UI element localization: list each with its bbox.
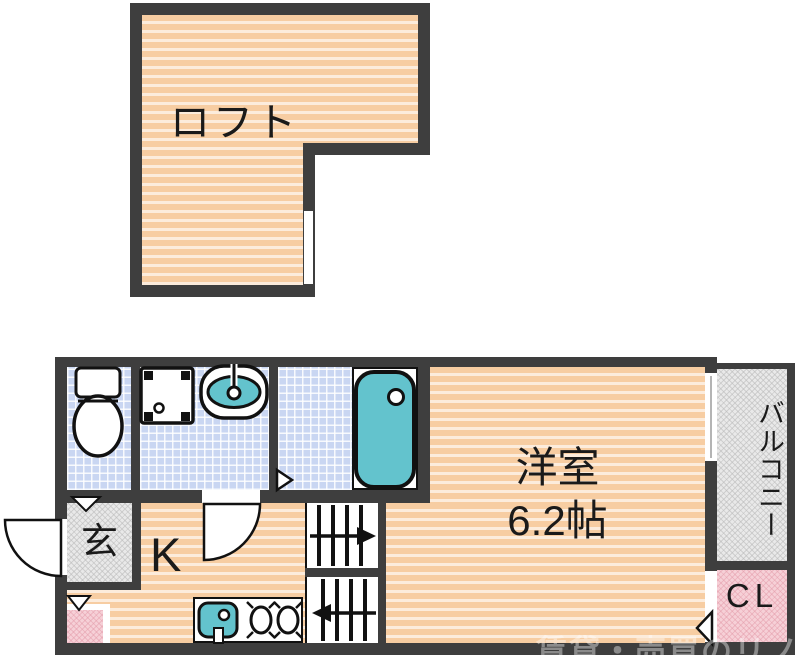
kitchen-label: K xyxy=(150,528,181,582)
watermark: 賃貸・売買のリノベ xyxy=(536,626,800,655)
stairs-down-arrow-icon xyxy=(312,604,376,622)
room-size: 6.2帖 xyxy=(455,495,660,548)
western-room-label: 洋室 6.2帖 xyxy=(455,442,660,547)
toilet-icon xyxy=(74,368,122,456)
loft-label: ロフト xyxy=(170,100,299,146)
washbasin-icon xyxy=(201,364,267,418)
stairs-up-arrow-icon xyxy=(310,527,376,545)
entrance-step-marker xyxy=(72,497,100,511)
entrance-label: 玄 xyxy=(67,521,132,564)
balcony-label: バルコニー xyxy=(720,376,784,562)
floor-plan: ロフト 洋室 6.2帖 K 玄 バルコニー CL 賃貸・売買のリノベ xyxy=(0,0,800,655)
kitchen-door-swing-icon xyxy=(204,504,260,560)
stove-burners-icon xyxy=(247,602,302,638)
room-name: 洋室 xyxy=(455,442,660,495)
kitchen-sink-icon xyxy=(199,603,237,643)
bathtub-icon xyxy=(356,372,414,487)
entrance-door-swing-icon xyxy=(5,520,61,576)
washing-machine-icon xyxy=(141,368,193,423)
shower-door-marker xyxy=(277,470,292,490)
shoe-cabinet-marker xyxy=(68,596,90,610)
closet-label: CL xyxy=(717,577,787,615)
